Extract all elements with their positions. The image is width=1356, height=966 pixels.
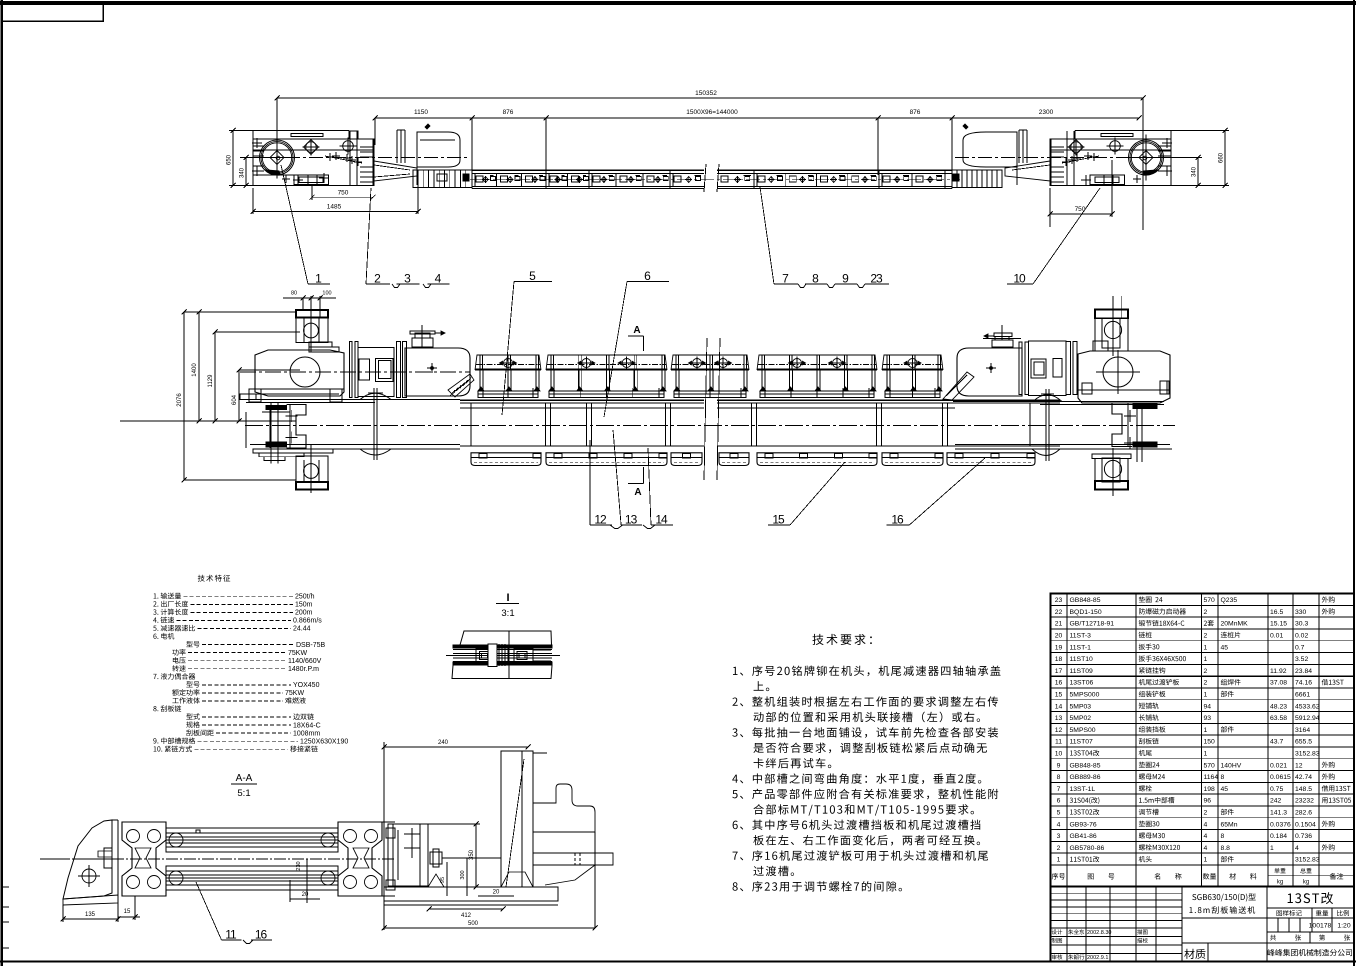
svg-text:282.6: 282.6: [1295, 810, 1312, 817]
svg-text:23.84: 23.84: [1295, 668, 1312, 675]
svg-text:1150: 1150: [414, 109, 428, 116]
svg-text:75KW: 75KW: [285, 690, 304, 697]
svg-text:330: 330: [1295, 609, 1307, 616]
svg-text:150352: 150352: [695, 90, 717, 97]
svg-text:2076: 2076: [177, 393, 183, 407]
svg-text:21: 21: [1055, 621, 1063, 628]
svg-text:250t/h: 250t/h: [295, 594, 315, 601]
svg-text:kg: kg: [1277, 879, 1283, 885]
svg-text:0.0376: 0.0376: [1270, 821, 1291, 828]
svg-text:4533.62: 4533.62: [1295, 703, 1320, 710]
svg-text:Q235: Q235: [1221, 597, 1238, 604]
svg-text:20MnMK: 20MnMK: [1221, 621, 1249, 628]
svg-text:20: 20: [493, 890, 500, 896]
svg-text:141.3: 141.3: [1270, 810, 1287, 817]
svg-text:1140/660V: 1140/660V: [288, 658, 322, 665]
svg-text:75KW: 75KW: [288, 650, 307, 657]
svg-text:GB848-85: GB848-85: [1070, 597, 1101, 604]
svg-text:8: 8: [1221, 833, 1225, 840]
svg-text:96: 96: [1204, 798, 1212, 805]
svg-text:37.08: 37.08: [1270, 680, 1287, 687]
svg-text:24.44: 24.44: [293, 626, 311, 633]
svg-text:A-A: A-A: [236, 773, 253, 784]
svg-text:5MP03: 5MP03: [1070, 703, 1092, 710]
svg-text:0.736: 0.736: [1295, 833, 1312, 840]
svg-text:200m: 200m: [295, 610, 313, 617]
svg-text:1164: 1164: [1204, 774, 1219, 781]
svg-text:242: 242: [1270, 798, 1282, 805]
svg-text:148.5: 148.5: [1295, 786, 1312, 793]
svg-text:3152.83: 3152.83: [1295, 857, 1320, 864]
svg-text:11ST-1: 11ST-1: [1070, 644, 1092, 651]
svg-text:14: 14: [1055, 703, 1063, 710]
svg-text:45: 45: [1221, 644, 1229, 651]
svg-text:42.74: 42.74: [1295, 774, 1312, 781]
svg-text:14: 14: [655, 513, 668, 527]
svg-text:12: 12: [1055, 727, 1063, 734]
svg-text:655.5: 655.5: [1295, 739, 1312, 746]
svg-text:750: 750: [1075, 206, 1086, 213]
svg-text:100: 100: [322, 291, 331, 297]
svg-text:2300: 2300: [1039, 109, 1054, 116]
svg-text:4: 4: [1204, 833, 1208, 840]
svg-text:GB889-86: GB889-86: [1070, 774, 1101, 781]
svg-text:5: 5: [1057, 810, 1061, 817]
svg-text:5912.94: 5912.94: [1295, 715, 1320, 722]
svg-text:94: 94: [1204, 703, 1212, 710]
svg-text:BQD1-150: BQD1-150: [1070, 609, 1102, 616]
svg-text:350: 350: [469, 849, 475, 860]
svg-text:150: 150: [1204, 739, 1216, 746]
svg-text:11: 11: [225, 928, 237, 942]
svg-text:48.23: 48.23: [1270, 703, 1287, 710]
svg-text:1: 1: [1270, 845, 1274, 852]
svg-text:10: 10: [1055, 751, 1063, 758]
svg-text:23232: 23232: [1295, 798, 1314, 805]
svg-text:11: 11: [1055, 739, 1062, 746]
svg-text:100178: 100178: [1309, 923, 1332, 930]
svg-text:11ST10: 11ST10: [1070, 656, 1094, 663]
svg-text:135: 135: [85, 912, 96, 918]
svg-text:1: 1: [1204, 644, 1208, 651]
svg-text:8: 8: [1221, 774, 1225, 781]
svg-text:13ST06: 13ST06: [1070, 680, 1094, 687]
svg-text:18: 18: [1055, 656, 1063, 663]
svg-text:230: 230: [296, 861, 302, 870]
svg-text:16.5: 16.5: [1270, 609, 1283, 616]
svg-text:15: 15: [1055, 692, 1063, 699]
svg-text:2: 2: [1204, 609, 1208, 616]
svg-text:A: A: [634, 487, 641, 498]
svg-text:3164: 3164: [1295, 727, 1310, 734]
svg-text:3: 3: [1057, 833, 1061, 840]
svg-text:20: 20: [302, 892, 309, 898]
svg-text:93: 93: [1204, 715, 1212, 722]
svg-text:I: I: [506, 592, 509, 604]
svg-text:2: 2: [1204, 668, 1208, 675]
svg-text:4: 4: [1204, 845, 1208, 852]
svg-text:0.75: 0.75: [1270, 786, 1283, 793]
svg-text:1: 1: [1204, 656, 1208, 663]
svg-text:45: 45: [1221, 786, 1229, 793]
svg-text:23: 23: [1055, 597, 1063, 604]
svg-text:15: 15: [124, 909, 131, 915]
svg-text:19: 19: [1055, 644, 1063, 651]
svg-text:74.16: 74.16: [1295, 680, 1312, 687]
svg-text:1008mm: 1008mm: [293, 730, 320, 737]
svg-text:GB5780-86: GB5780-86: [1070, 845, 1105, 852]
svg-text:20: 20: [1055, 633, 1063, 640]
svg-text:240: 240: [438, 740, 449, 746]
svg-text:604: 604: [232, 394, 238, 405]
svg-text:5:1: 5:1: [237, 788, 250, 799]
svg-text:9: 9: [1057, 762, 1061, 769]
svg-text:0.1504: 0.1504: [1295, 821, 1316, 828]
svg-text:1500X96=144000: 1500X96=144000: [686, 109, 738, 116]
svg-text:2002.8.30: 2002.8.30: [1087, 930, 1111, 936]
svg-text:11ST07: 11ST07: [1070, 739, 1094, 746]
svg-text:1480r.P.m: 1480r.P.m: [288, 666, 319, 673]
svg-text:8.8: 8.8: [1221, 845, 1231, 852]
svg-text:80: 80: [291, 291, 297, 297]
svg-text:63.58: 63.58: [1270, 715, 1287, 722]
svg-text:23: 23: [870, 272, 883, 286]
svg-text:412: 412: [461, 913, 472, 919]
svg-text:150m: 150m: [295, 602, 313, 609]
svg-text:4: 4: [1204, 821, 1208, 828]
svg-text:500: 500: [468, 921, 479, 927]
svg-text:876: 876: [503, 109, 514, 116]
svg-text:16: 16: [255, 928, 268, 942]
svg-text:kg: kg: [1303, 879, 1309, 885]
svg-text:5MP02: 5MP02: [1070, 715, 1092, 722]
svg-text:2002.9.1: 2002.9.1: [1087, 955, 1108, 961]
svg-text:0.866m/s: 0.866m/s: [293, 618, 322, 625]
svg-text:340: 340: [1192, 166, 1198, 177]
svg-text:5MPS000: 5MPS000: [1070, 692, 1100, 699]
svg-text:43.7: 43.7: [1270, 739, 1283, 746]
svg-text:0.184: 0.184: [1270, 833, 1287, 840]
svg-text:3152.83: 3152.83: [1295, 751, 1320, 758]
svg-text:11.92: 11.92: [1270, 668, 1287, 675]
svg-text:2: 2: [1204, 633, 1208, 640]
svg-text:10: 10: [1013, 272, 1026, 286]
svg-text:2: 2: [1057, 845, 1061, 852]
svg-text:15.15: 15.15: [1270, 621, 1287, 628]
svg-text:GB41-86: GB41-86: [1070, 833, 1097, 840]
svg-text:4: 4: [1295, 845, 1299, 852]
svg-text:GB93-76: GB93-76: [1070, 821, 1097, 828]
svg-text:GB848-85: GB848-85: [1070, 762, 1101, 769]
svg-text:750: 750: [338, 190, 349, 197]
svg-text:17: 17: [1055, 668, 1063, 675]
svg-text:1:20: 1:20: [1337, 923, 1350, 930]
svg-text:570: 570: [1204, 597, 1216, 604]
svg-text:YOX450: YOX450: [293, 682, 320, 689]
svg-text:15: 15: [772, 513, 785, 527]
svg-text:650: 650: [227, 154, 233, 165]
svg-text:1: 1: [1204, 727, 1208, 734]
svg-text:4: 4: [1057, 821, 1061, 828]
svg-text:13: 13: [625, 513, 638, 527]
svg-text:16: 16: [891, 513, 904, 527]
svg-text:13ST-1L: 13ST-1L: [1070, 786, 1096, 793]
svg-text:1250X630X190: 1250X630X190: [300, 738, 348, 745]
svg-text:2: 2: [1204, 680, 1208, 687]
svg-text:95: 95: [440, 877, 446, 883]
svg-text:1: 1: [1204, 692, 1208, 699]
svg-text:DSB-75B: DSB-75B: [296, 642, 326, 649]
svg-text:30.3: 30.3: [1295, 621, 1308, 628]
svg-text:A: A: [633, 325, 640, 336]
svg-text:12: 12: [594, 513, 607, 527]
svg-text:6: 6: [1057, 798, 1061, 805]
svg-text:1400: 1400: [192, 363, 198, 377]
svg-text:198: 198: [1204, 786, 1216, 793]
svg-text:1: 1: [1204, 857, 1208, 864]
svg-text:140HV: 140HV: [1221, 762, 1242, 769]
svg-text:16: 16: [1055, 680, 1063, 687]
svg-text:0.021: 0.021: [1270, 762, 1287, 769]
svg-text:570: 570: [1204, 762, 1216, 769]
svg-text:300: 300: [460, 870, 466, 879]
svg-text:340: 340: [240, 167, 246, 178]
svg-text:876: 876: [910, 109, 921, 116]
svg-text:3:1: 3:1: [501, 608, 514, 619]
svg-text:5MPS00: 5MPS00: [1070, 727, 1096, 734]
svg-text:11ST-3: 11ST-3: [1070, 633, 1092, 640]
svg-text:18X64-C: 18X64-C: [293, 722, 321, 729]
svg-text:13: 13: [1055, 715, 1063, 722]
svg-text:7: 7: [1057, 786, 1061, 793]
svg-text:3.52: 3.52: [1295, 656, 1308, 663]
svg-text:660: 660: [1219, 152, 1225, 163]
svg-text:1: 1: [1204, 751, 1208, 758]
svg-text:12: 12: [1295, 762, 1303, 769]
svg-text:2: 2: [1204, 810, 1208, 817]
svg-text:8: 8: [1057, 774, 1061, 781]
svg-text:6661: 6661: [1295, 692, 1310, 699]
svg-text:0.01: 0.01: [1270, 633, 1283, 640]
svg-text:0.7: 0.7: [1295, 644, 1305, 651]
svg-text:1: 1: [1057, 857, 1061, 864]
svg-text:0.02: 0.02: [1295, 633, 1308, 640]
svg-text:0.0615: 0.0615: [1270, 774, 1291, 781]
svg-text:65Mn: 65Mn: [1221, 821, 1238, 828]
svg-text:1129: 1129: [208, 374, 214, 388]
svg-text:11ST09: 11ST09: [1070, 668, 1094, 675]
svg-text:GB/T12718-91: GB/T12718-91: [1070, 621, 1115, 628]
svg-text:1485: 1485: [327, 204, 342, 211]
svg-text:22: 22: [1055, 609, 1063, 616]
